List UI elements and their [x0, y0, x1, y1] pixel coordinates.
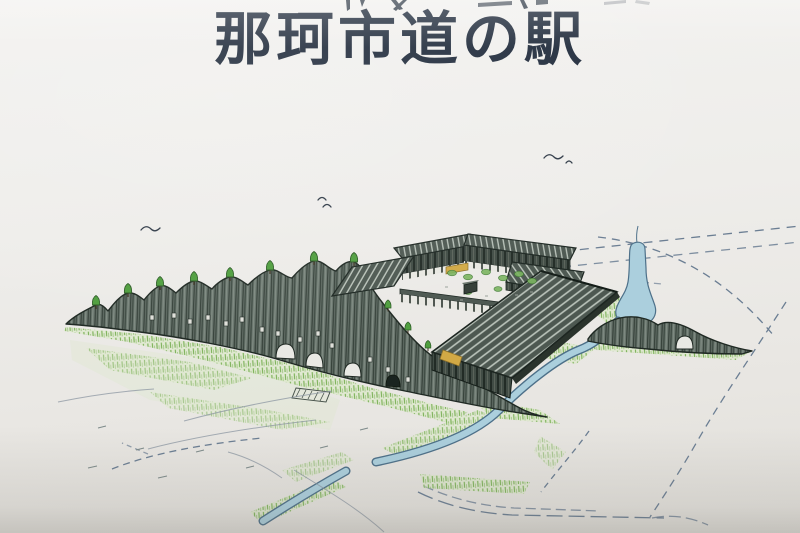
- aerial-sketch-illustration: [0, 0, 800, 533]
- cropped-text-fragments: [346, 0, 650, 11]
- printed-page-photo: 那珂市道の駅: [0, 0, 800, 533]
- pond: [616, 226, 656, 326]
- birds-icon: [141, 155, 572, 231]
- access-road: [418, 486, 708, 525]
